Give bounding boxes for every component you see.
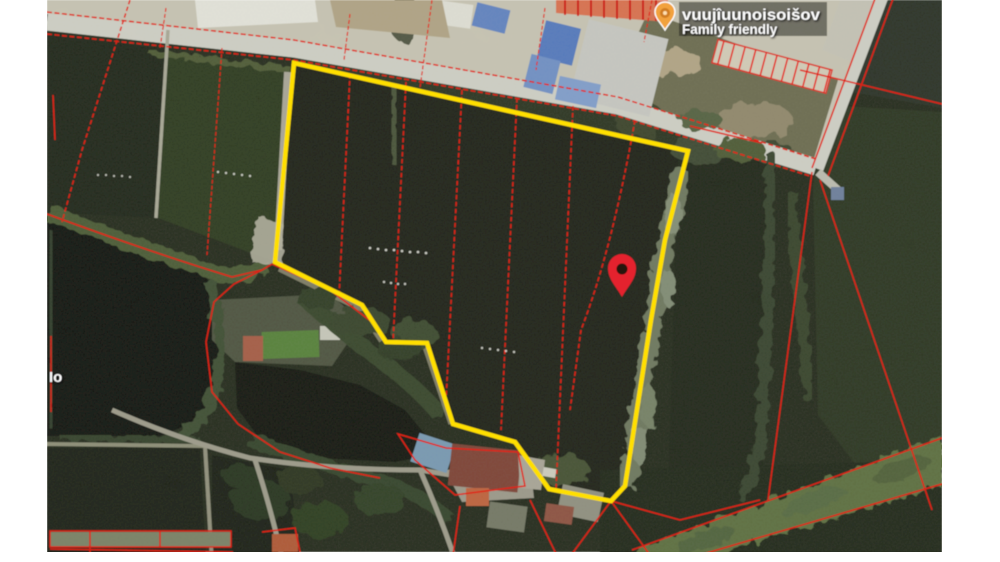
- svg-text:Io: Io: [49, 369, 62, 386]
- svg-text:Family friendly: Family friendly: [682, 22, 778, 37]
